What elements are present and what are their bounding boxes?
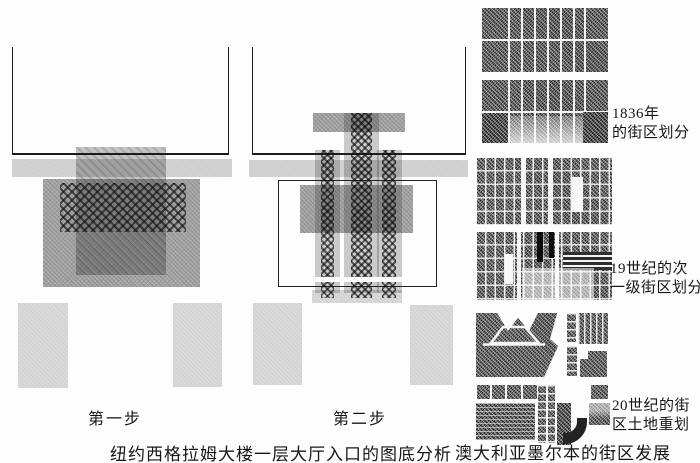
- label-20th-line1: 20世纪的街: [612, 398, 690, 414]
- label-1836-line2: 的街区划分: [612, 125, 690, 141]
- label-1836: 1836年 的街区划分: [612, 105, 690, 143]
- label-19th-line1: 19世纪的次: [610, 261, 688, 277]
- map-block-19th-lower: [477, 232, 612, 300]
- solid-dark-strip: [549, 232, 554, 258]
- lot-strip: [548, 385, 555, 443]
- white-break-line: [313, 277, 404, 282]
- right-figure-caption: 澳大利亚墨尔本的街区发展: [455, 439, 671, 463]
- trapezoid-outline: [483, 323, 547, 347]
- step2-label: 第二步: [333, 405, 387, 429]
- building-footprint: [18, 303, 68, 388]
- lot-block: [580, 351, 607, 377]
- dark-corner-lot: [482, 113, 508, 143]
- white-slot: [505, 254, 513, 284]
- entry-axis-band: [76, 147, 166, 275]
- faded-lots-area: [508, 116, 583, 143]
- light-patch: [522, 268, 594, 300]
- lot-row: [578, 313, 608, 344]
- label-1836-line1: 1836年: [612, 106, 660, 122]
- white-notch: [580, 351, 588, 359]
- plaza-outline: [12, 47, 229, 155]
- solid-dark-strip: [537, 232, 543, 262]
- label-20th: 20世纪的街 区土地重划: [612, 397, 690, 435]
- building-footprint: [173, 303, 222, 387]
- label-19th: 19世纪的次 一级街区划分: [610, 260, 700, 298]
- pier-core-left: [321, 150, 334, 298]
- map-block-1836-upper: [482, 8, 608, 72]
- pier-core-center: [351, 113, 372, 298]
- map-block-1836-lower: [482, 80, 608, 143]
- lot-strip: [538, 385, 546, 443]
- lot-strip: [567, 346, 577, 376]
- step1-label: 第一步: [88, 405, 142, 429]
- building-footprint: [410, 305, 453, 385]
- small-lot-row: [477, 385, 537, 399]
- label-19th-line2: 一级街区划分: [610, 280, 700, 296]
- striated-slab: [476, 403, 535, 440]
- figure-ground-analysis-figure: 1836年 的街区划分 19世纪的次 一级街区划分 20世纪的街 区土地重划 第…: [0, 0, 700, 463]
- lot-square: [589, 403, 610, 425]
- building-footprint: [253, 303, 302, 385]
- white-slot: [572, 177, 583, 212]
- label-20th-line2: 区土地重划: [612, 417, 690, 433]
- lot-strip: [567, 313, 576, 342]
- lot-square: [591, 385, 608, 399]
- map-block-19th-upper: [477, 158, 612, 225]
- dark-corner-lot: [583, 112, 608, 143]
- pier-core-right: [382, 150, 396, 298]
- left-figure-caption: 纽约西格拉姆大楼一层大厅入口的图底分析: [110, 440, 452, 463]
